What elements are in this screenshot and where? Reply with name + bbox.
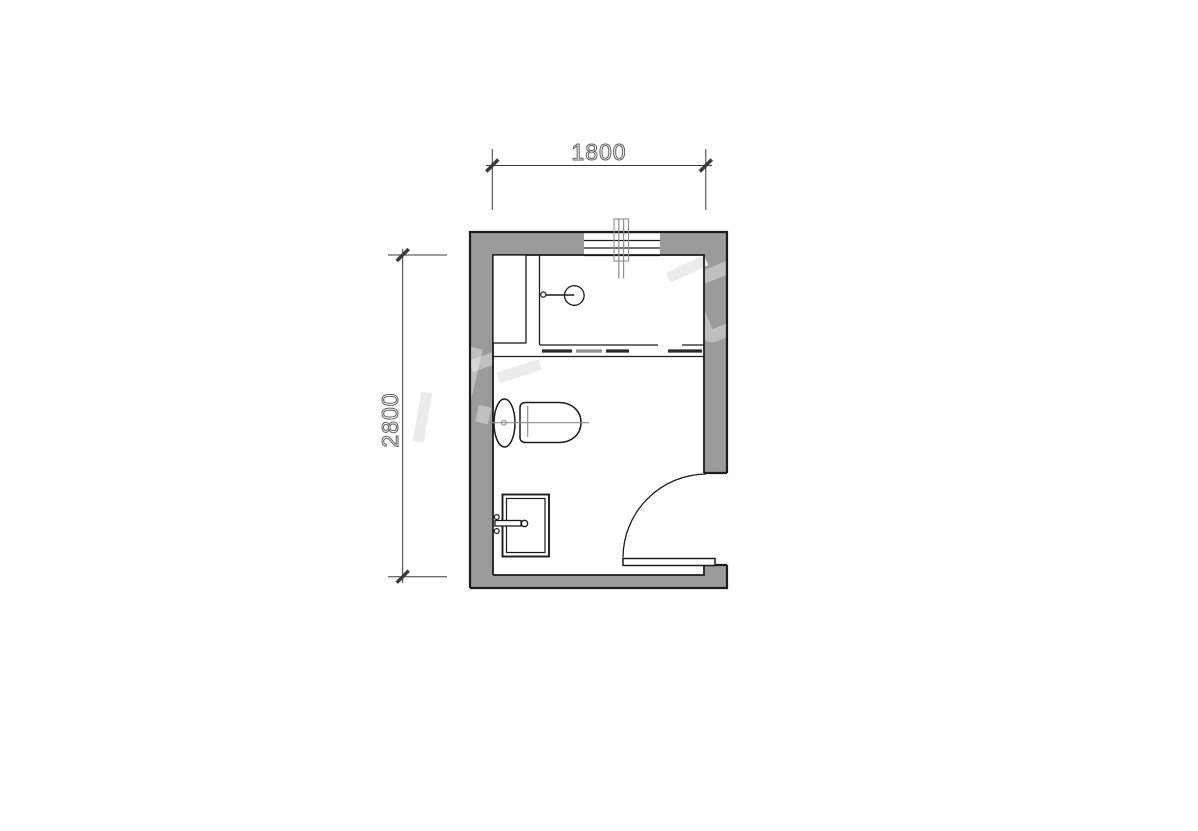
shower-mount [541, 292, 546, 297]
dimension-top-label: 1800 [571, 139, 626, 165]
sink-drain [521, 520, 527, 526]
dimension-left: 2800 [377, 249, 447, 583]
floor-plan-drawing: 1800 2800 [0, 0, 1198, 831]
faucet-valve-bottom [494, 529, 499, 534]
faucet-valve-top [494, 515, 499, 520]
watermark-stroke [413, 392, 433, 443]
window-opening [584, 232, 660, 256]
dimension-left-label: 2800 [377, 392, 403, 447]
door-opening [704, 473, 727, 565]
floor-plan-page: 1800 2800 [0, 0, 1198, 831]
door-leaf [623, 559, 715, 566]
faucet-spout [495, 521, 521, 527]
sink [494, 495, 549, 557]
dimension-top: 1800 [486, 139, 712, 210]
shower-side-panel [493, 255, 526, 343]
